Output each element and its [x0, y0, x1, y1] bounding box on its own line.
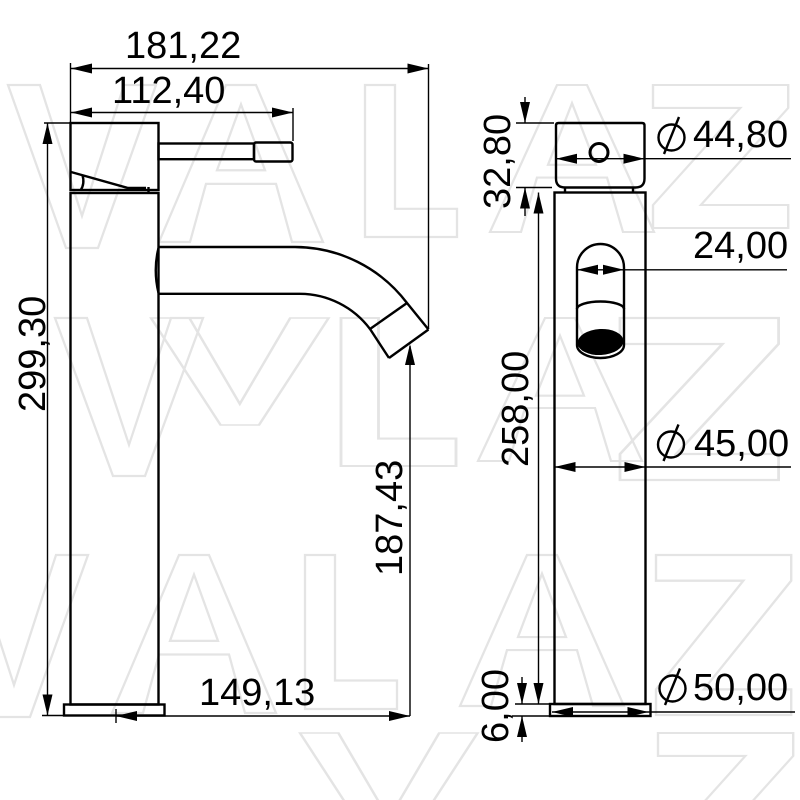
svg-text:44,80: 44,80	[693, 114, 788, 156]
svg-text:187,43: 187,43	[369, 460, 411, 576]
svg-text:258,00: 258,00	[495, 351, 537, 467]
svg-text:112,40: 112,40	[112, 70, 225, 112]
svg-text:45,00: 45,00	[694, 423, 789, 465]
svg-text:24,00: 24,00	[693, 225, 788, 267]
svg-text:50,00: 50,00	[693, 667, 788, 709]
svg-text:6,00: 6,00	[475, 669, 517, 743]
svg-text:181,22: 181,22	[125, 25, 241, 67]
svg-text:32,80: 32,80	[477, 114, 519, 209]
svg-text:149,13: 149,13	[199, 672, 315, 714]
